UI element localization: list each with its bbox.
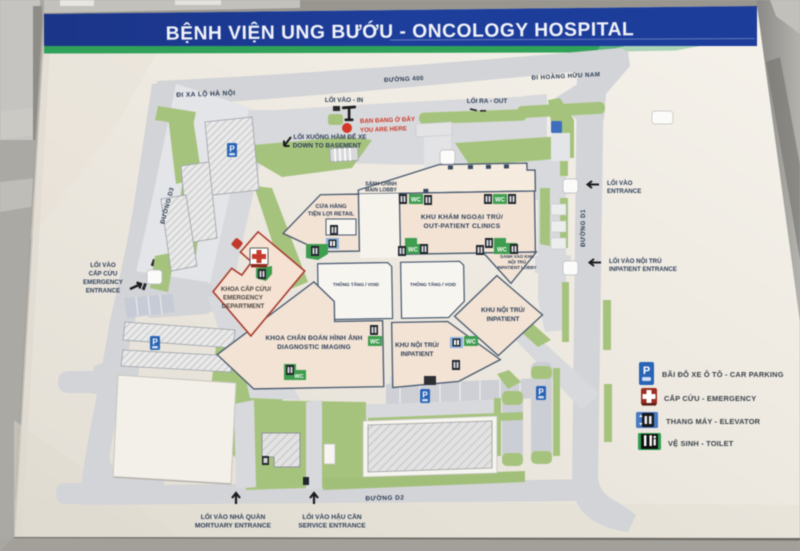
svg-text:ĐƯỜNG D1: ĐƯỜNG D1 xyxy=(579,209,587,247)
svg-text:KHU KHÁM NGOẠI TRÚ/: KHU KHÁM NGOẠI TRÚ/ xyxy=(421,212,503,221)
svg-text:VỆ SINH - TOILET: VỆ SINH - TOILET xyxy=(668,439,734,448)
svg-text:SẢNH VÀO KHU: SẢNH VÀO KHU xyxy=(500,254,534,259)
svg-text:ENTRANCE: ENTRANCE xyxy=(607,188,641,195)
svg-text:KHOA CHẨN ĐOÁN HÌNH ẢNH: KHOA CHẨN ĐOÁN HÌNH ẢNH xyxy=(265,333,362,342)
svg-text:SERVICE ENTRANCE: SERVICE ENTRANCE xyxy=(298,523,366,530)
svg-text:INPATIENT: INPATIENT xyxy=(487,316,520,323)
svg-text:BÃI ĐỖ XE Ô TÔ - CAR PARKING: BÃI ĐỖ XE Ô TÔ - CAR PARKING xyxy=(662,370,784,379)
svg-text:CỬA HÀNG: CỬA HÀNG xyxy=(315,203,347,210)
svg-text:P: P xyxy=(643,365,650,377)
svg-text:KHU NỘI TRÚ/: KHU NỘI TRÚ/ xyxy=(481,305,525,314)
svg-text:MAIN LOBBY: MAIN LOBBY xyxy=(365,188,397,194)
svg-text:THANG MÁY - ELEVATOR: THANG MÁY - ELEVATOR xyxy=(666,417,761,426)
svg-text:DEPARTMENT: DEPARTMENT xyxy=(222,303,265,310)
svg-text:THÔNG TẦNG / VOID: THÔNG TẦNG / VOID xyxy=(410,280,457,287)
svg-text:KHOA CẤP CỨU/: KHOA CẤP CỨU/ xyxy=(221,286,271,293)
svg-text:WC: WC xyxy=(294,374,303,380)
svg-text:MORTUARY ENTRANCE: MORTUARY ENTRANCE xyxy=(195,523,272,530)
svg-text:EMERGENCY: EMERGENCY xyxy=(223,295,264,302)
svg-text:ENTRANCE: ENTRANCE xyxy=(86,288,120,295)
svg-text:DOWN TO BASEMENT: DOWN TO BASEMENT xyxy=(293,143,361,150)
svg-text:OUT-PATIENT CLINICS: OUT-PATIENT CLINICS xyxy=(424,223,501,230)
svg-text:SẢNH CHÍNH: SẢNH CHÍNH xyxy=(365,180,397,188)
svg-text:LỐI VÀO: LỐI VÀO xyxy=(90,262,116,269)
svg-text:EMERGENCY: EMERGENCY xyxy=(83,279,124,286)
svg-text:LỐI VÀO: LỐI VÀO xyxy=(607,180,633,187)
svg-text:CẤP CỨU - EMERGENCY: CẤP CỨU - EMERGENCY xyxy=(664,393,756,403)
svg-text:DIAGNOSTIC IMAGING: DIAGNOSTIC IMAGING xyxy=(277,344,351,351)
svg-text:TIỆN LỢI RETAIL: TIỆN LỢI RETAIL xyxy=(308,210,355,218)
svg-text:INPATIENT: INPATIENT xyxy=(401,351,434,358)
svg-text:INPATIENT LOBBY: INPATIENT LOBBY xyxy=(497,265,536,270)
svg-text:KHU NỘI TRÚ/: KHU NỘI TRÚ/ xyxy=(395,340,439,349)
svg-text:CẤP CỨU: CẤP CỨU xyxy=(89,271,118,278)
svg-text:THÔNG TẦNG / VOID: THÔNG TẦNG / VOID xyxy=(333,280,380,287)
svg-text:INPATIENT ENTRANCE: INPATIENT ENTRANCE xyxy=(609,266,677,273)
svg-text:LỐI VÀO NỘI TRÚ: LỐI VÀO NỘI TRÚ xyxy=(609,257,662,265)
svg-text:NỘI TRÚ: NỘI TRÚ xyxy=(508,260,526,265)
